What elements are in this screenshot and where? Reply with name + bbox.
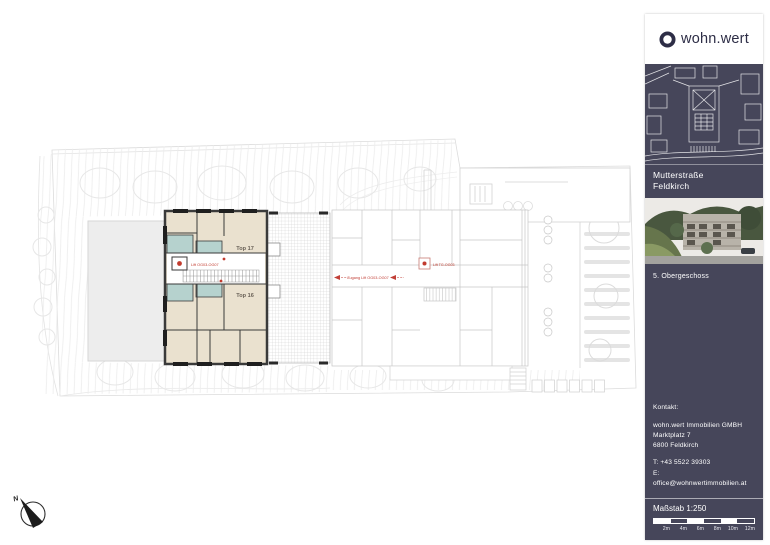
site-plan-thumbnail [645, 64, 763, 164]
hatched-roof [267, 213, 330, 363]
apartment-label-top17: Top 17 [236, 246, 254, 252]
lift-right-label: Lift TG-OG03 [433, 263, 455, 267]
building-photo [645, 198, 763, 264]
scale-label: Maßstab 1:250 [653, 504, 755, 513]
project-title: Mutterstraße Feldkirch [645, 164, 763, 198]
contact-heading: Kontakt: [653, 403, 755, 413]
project-title-line1: Mutterstraße [653, 170, 755, 181]
scale-ticks: 2m 4m 6m 8m 10m 12m [653, 526, 755, 532]
scale-tick: 6m [687, 526, 704, 532]
apartment-block: Lift OG03-OG07 Top 17 Top 16 [165, 211, 267, 364]
logo-text: wohn.wert [681, 31, 749, 47]
contact-company: wohn.wert Immobilien GMBH [653, 421, 755, 431]
roof-terrace [88, 221, 165, 361]
contact-city: 6800 Feldkirch [653, 441, 755, 451]
marker-dot [220, 280, 223, 283]
site-plan-drawing [645, 64, 763, 164]
building-rendering [645, 198, 763, 264]
marker-dot [223, 258, 226, 261]
north-label: N [12, 495, 20, 504]
logo: wohn.wert [645, 14, 763, 64]
lift-dot-icon [177, 261, 182, 266]
scale-bar [653, 518, 755, 524]
apartment-label-top16: Top 16 [236, 293, 254, 299]
scale-tick: 2m [653, 526, 670, 532]
contact-street: Marktplatz 7 [653, 431, 755, 441]
project-title-line2: Feldkirch [653, 181, 755, 192]
info-sidebar: wohn.wert [645, 14, 763, 540]
neighbor-building-right [332, 210, 552, 380]
scale-section: Maßstab 1:250 2m 4m 6m 8m 10m 12m [645, 498, 763, 540]
wohnwert-logo-icon [659, 31, 676, 48]
scale-tick: 8m [704, 526, 721, 532]
zugang-label: Zugang Lift OG03-OG07 [347, 276, 389, 280]
north-compass-icon: N [12, 495, 45, 528]
sidebar-spacer [645, 289, 763, 403]
contact-phone: T: +43 5522 39303 [653, 458, 755, 468]
scale-tick: 4m [670, 526, 687, 532]
lift-dot-icon [423, 262, 427, 266]
scale-tick: 10m [721, 526, 738, 532]
contact-block: Kontakt: wohn.wert Immobilien GMBH Markt… [645, 403, 763, 489]
lift-left-label: Lift OG03-OG07 [191, 263, 219, 267]
scale-tick: 12m [738, 526, 755, 532]
floor-label: 5. Obergeschoss [645, 264, 763, 289]
contact-email: E: office@wohnwertimmobilien.at [653, 469, 755, 489]
